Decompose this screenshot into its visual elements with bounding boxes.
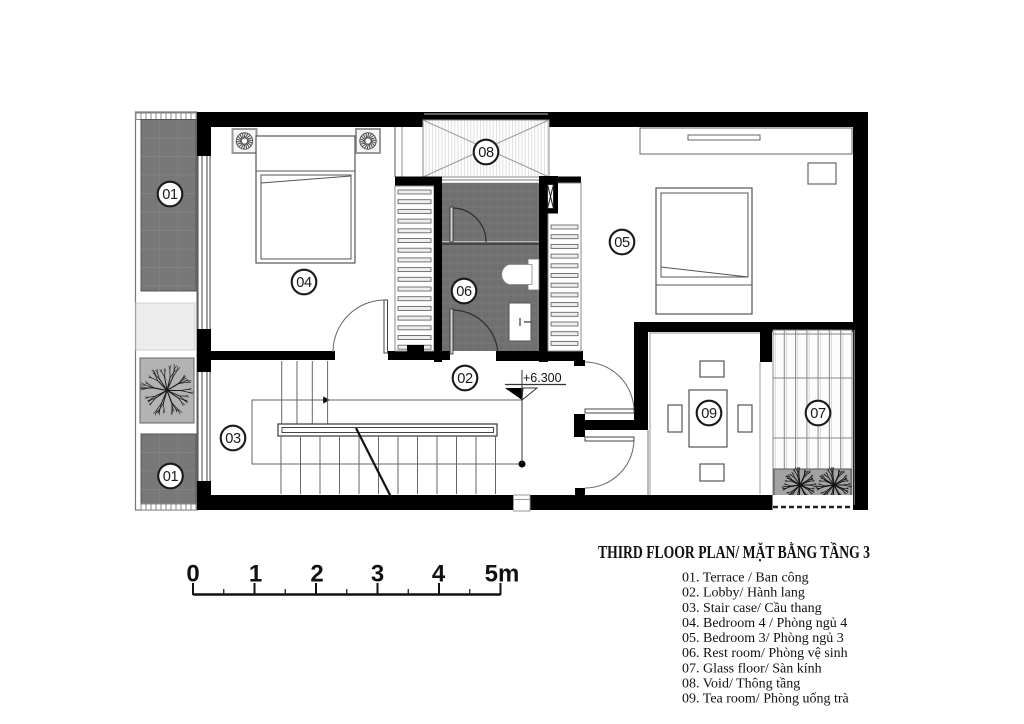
svg-text:03. Stair case/ Cầu thang: 03. Stair case/ Cầu thang [682, 601, 822, 616]
svg-text:09: 09 [701, 406, 717, 422]
svg-text:01: 01 [162, 187, 178, 203]
svg-text:04. Bedroom 4 / Phòng ngủ 4: 04. Bedroom 4 / Phòng ngủ 4 [682, 616, 847, 631]
svg-text:07. Glass floor/ Sàn kính: 07. Glass floor/ Sàn kính [682, 661, 822, 676]
svg-text:07: 07 [810, 406, 826, 422]
svg-text:01. Terrace / Ban công: 01. Terrace / Ban công [682, 571, 809, 586]
svg-text:02. Lobby/ Hành lang: 02. Lobby/ Hành lang [682, 586, 805, 601]
svg-text:5m: 5m [485, 561, 520, 588]
svg-text:08. Void/ Thông tầng: 08. Void/ Thông tầng [682, 677, 800, 692]
svg-text:03: 03 [225, 431, 241, 447]
svg-text:05. Bedroom 3/ Phòng ngủ 3: 05. Bedroom 3/ Phòng ngủ 3 [682, 631, 844, 646]
svg-text:02: 02 [457, 371, 473, 387]
svg-text:09. Tea room/ Phòng uống trà: 09. Tea room/ Phòng uống trà [682, 692, 850, 707]
svg-text:06. Rest room/ Phòng vệ sinh: 06. Rest room/ Phòng vệ sinh [682, 646, 848, 661]
svg-text:THIRD FLOOR PLAN/ MẶT BẰNG TẦN: THIRD FLOOR PLAN/ MẶT BẰNG TẦNG 3 [598, 542, 870, 562]
svg-text:08: 08 [478, 145, 494, 161]
svg-text:06: 06 [456, 284, 472, 300]
svg-text:05: 05 [614, 235, 630, 251]
svg-text:04: 04 [296, 275, 312, 291]
svg-text:+6.300: +6.300 [523, 371, 562, 385]
svg-text:01: 01 [163, 469, 179, 485]
